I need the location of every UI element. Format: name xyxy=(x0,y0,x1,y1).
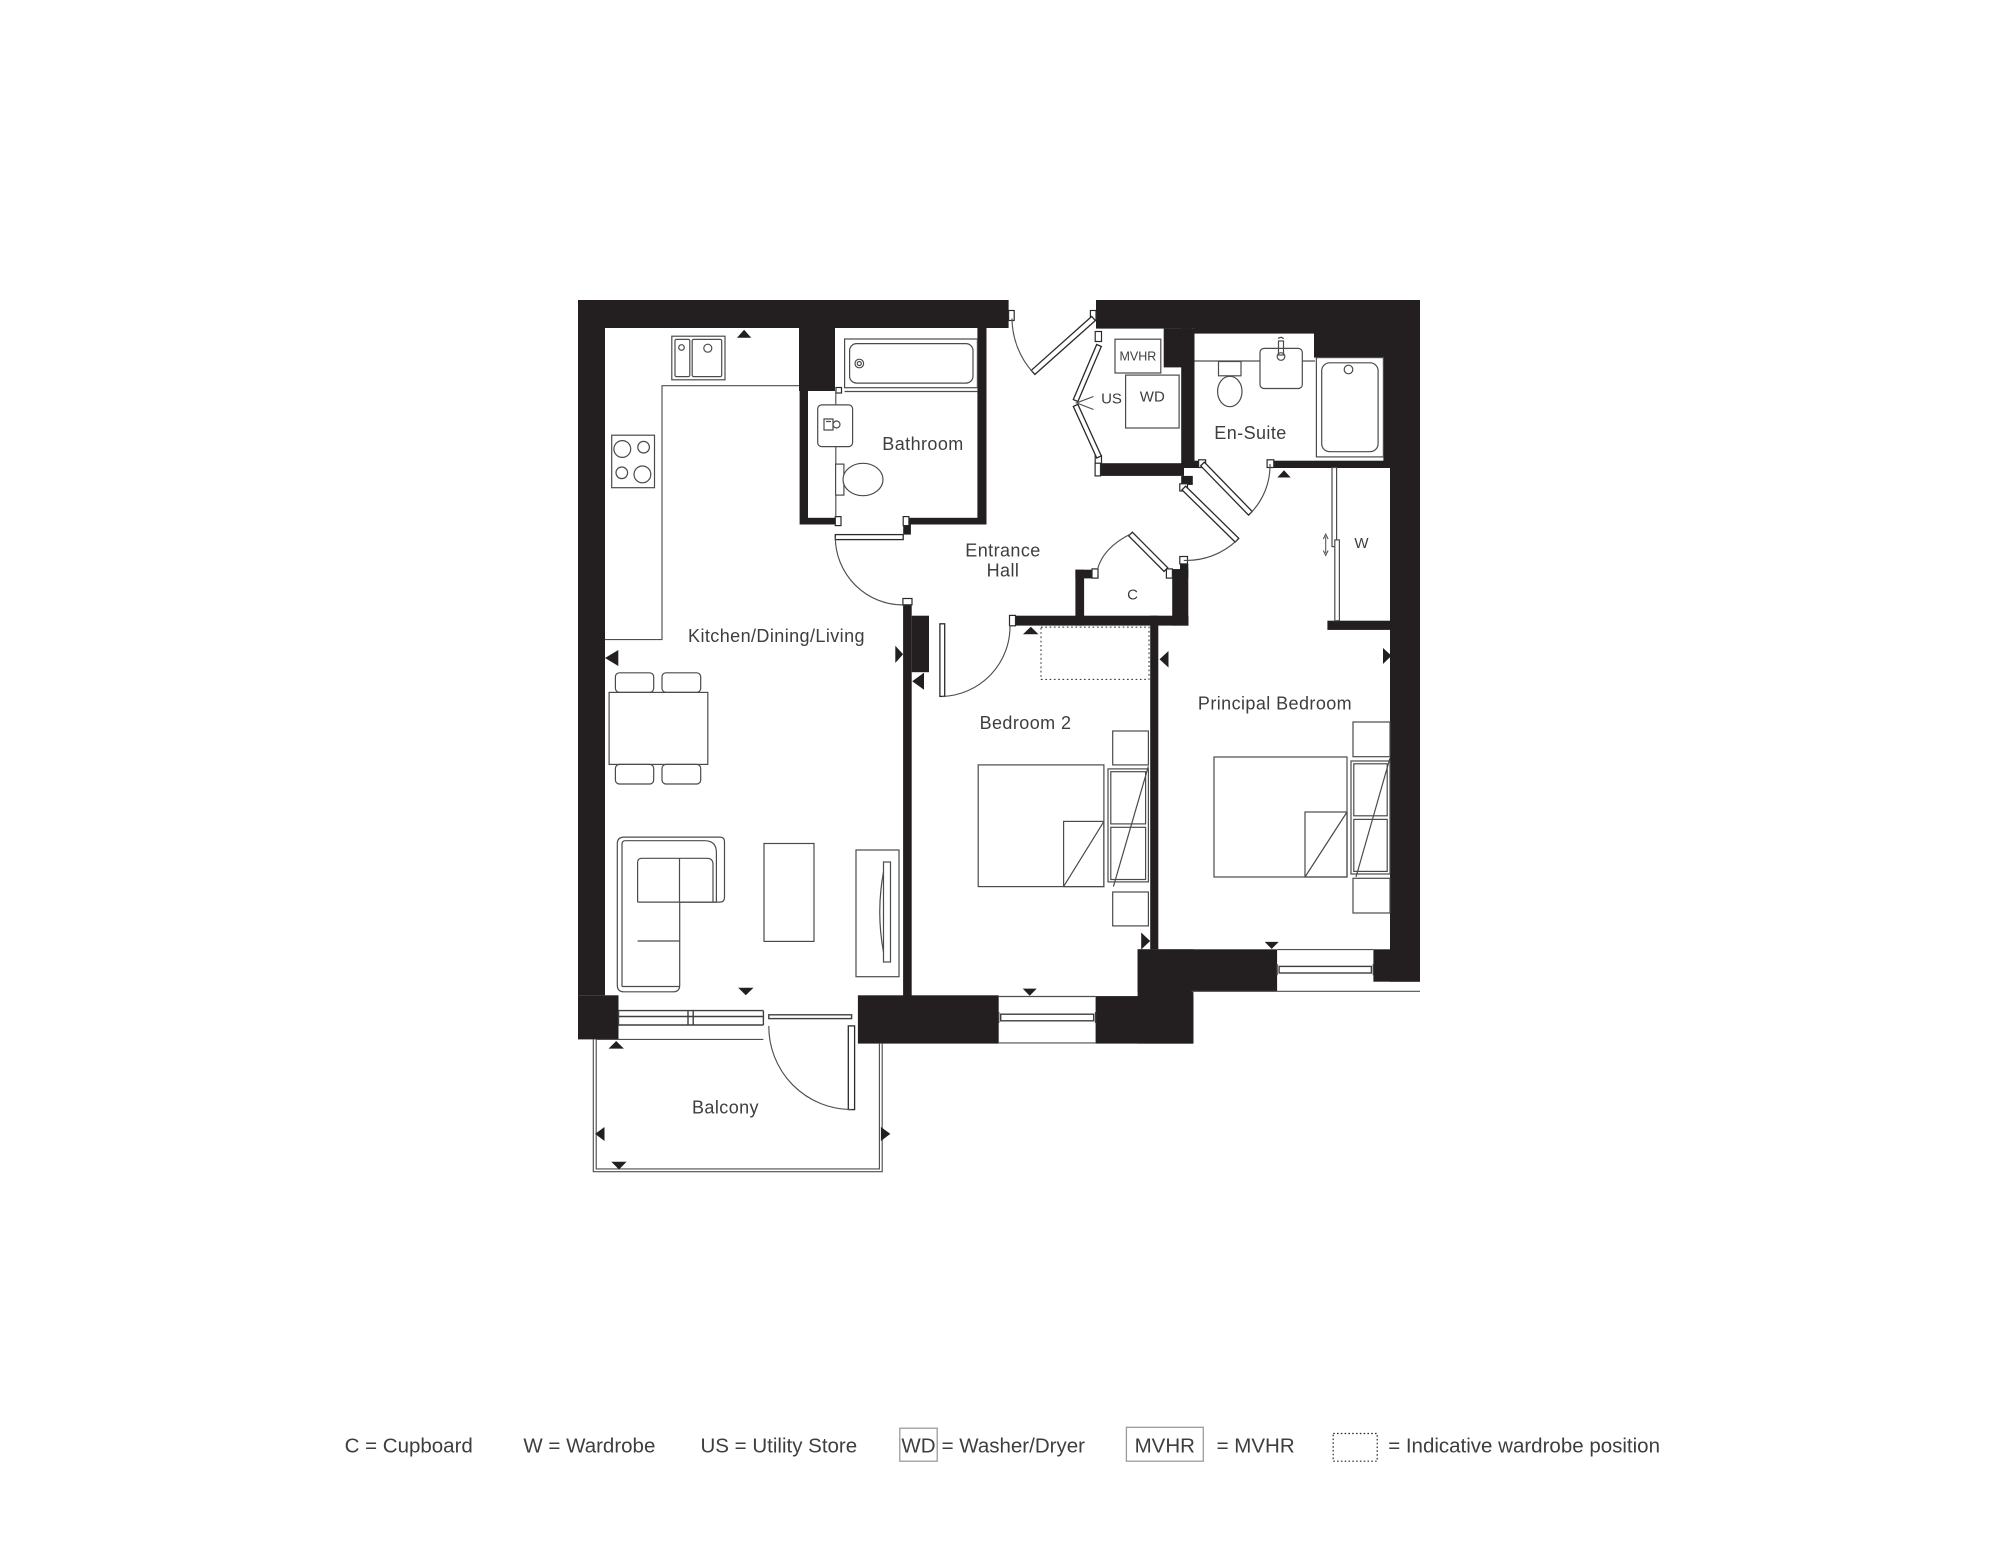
svg-text:US: US xyxy=(1101,391,1122,408)
svg-text:= Indicative wardrobe position: = Indicative wardrobe position xyxy=(1388,1435,1660,1458)
svg-text:WD: WD xyxy=(901,1435,935,1458)
svg-text:C: C xyxy=(1127,587,1138,604)
svg-text:En-Suite: En-Suite xyxy=(1214,423,1286,443)
svg-text:Principal Bedroom: Principal Bedroom xyxy=(1198,694,1352,714)
svg-text:MVHR: MVHR xyxy=(1119,349,1156,363)
svg-text:= Washer/Dryer: = Washer/Dryer xyxy=(942,1435,1086,1458)
svg-text:US = Utility Store: US = Utility Store xyxy=(701,1435,858,1458)
svg-text:MVHR: MVHR xyxy=(1135,1435,1195,1458)
svg-text:W: W xyxy=(1354,535,1369,552)
svg-text:WD: WD xyxy=(1140,388,1165,405)
svg-text:= MVHR: = MVHR xyxy=(1217,1435,1295,1458)
svg-text:Entrance: Entrance xyxy=(965,541,1040,561)
svg-text:Balcony: Balcony xyxy=(692,1098,759,1118)
svg-text:C = Cupboard: C = Cupboard xyxy=(345,1435,473,1458)
svg-text:W = Wardrobe: W = Wardrobe xyxy=(523,1435,655,1458)
svg-text:Bathroom: Bathroom xyxy=(882,434,963,454)
svg-text:Kitchen/Dining/Living: Kitchen/Dining/Living xyxy=(688,626,865,646)
svg-text:Bedroom 2: Bedroom 2 xyxy=(980,713,1072,733)
svg-text:Hall: Hall xyxy=(987,561,1020,581)
